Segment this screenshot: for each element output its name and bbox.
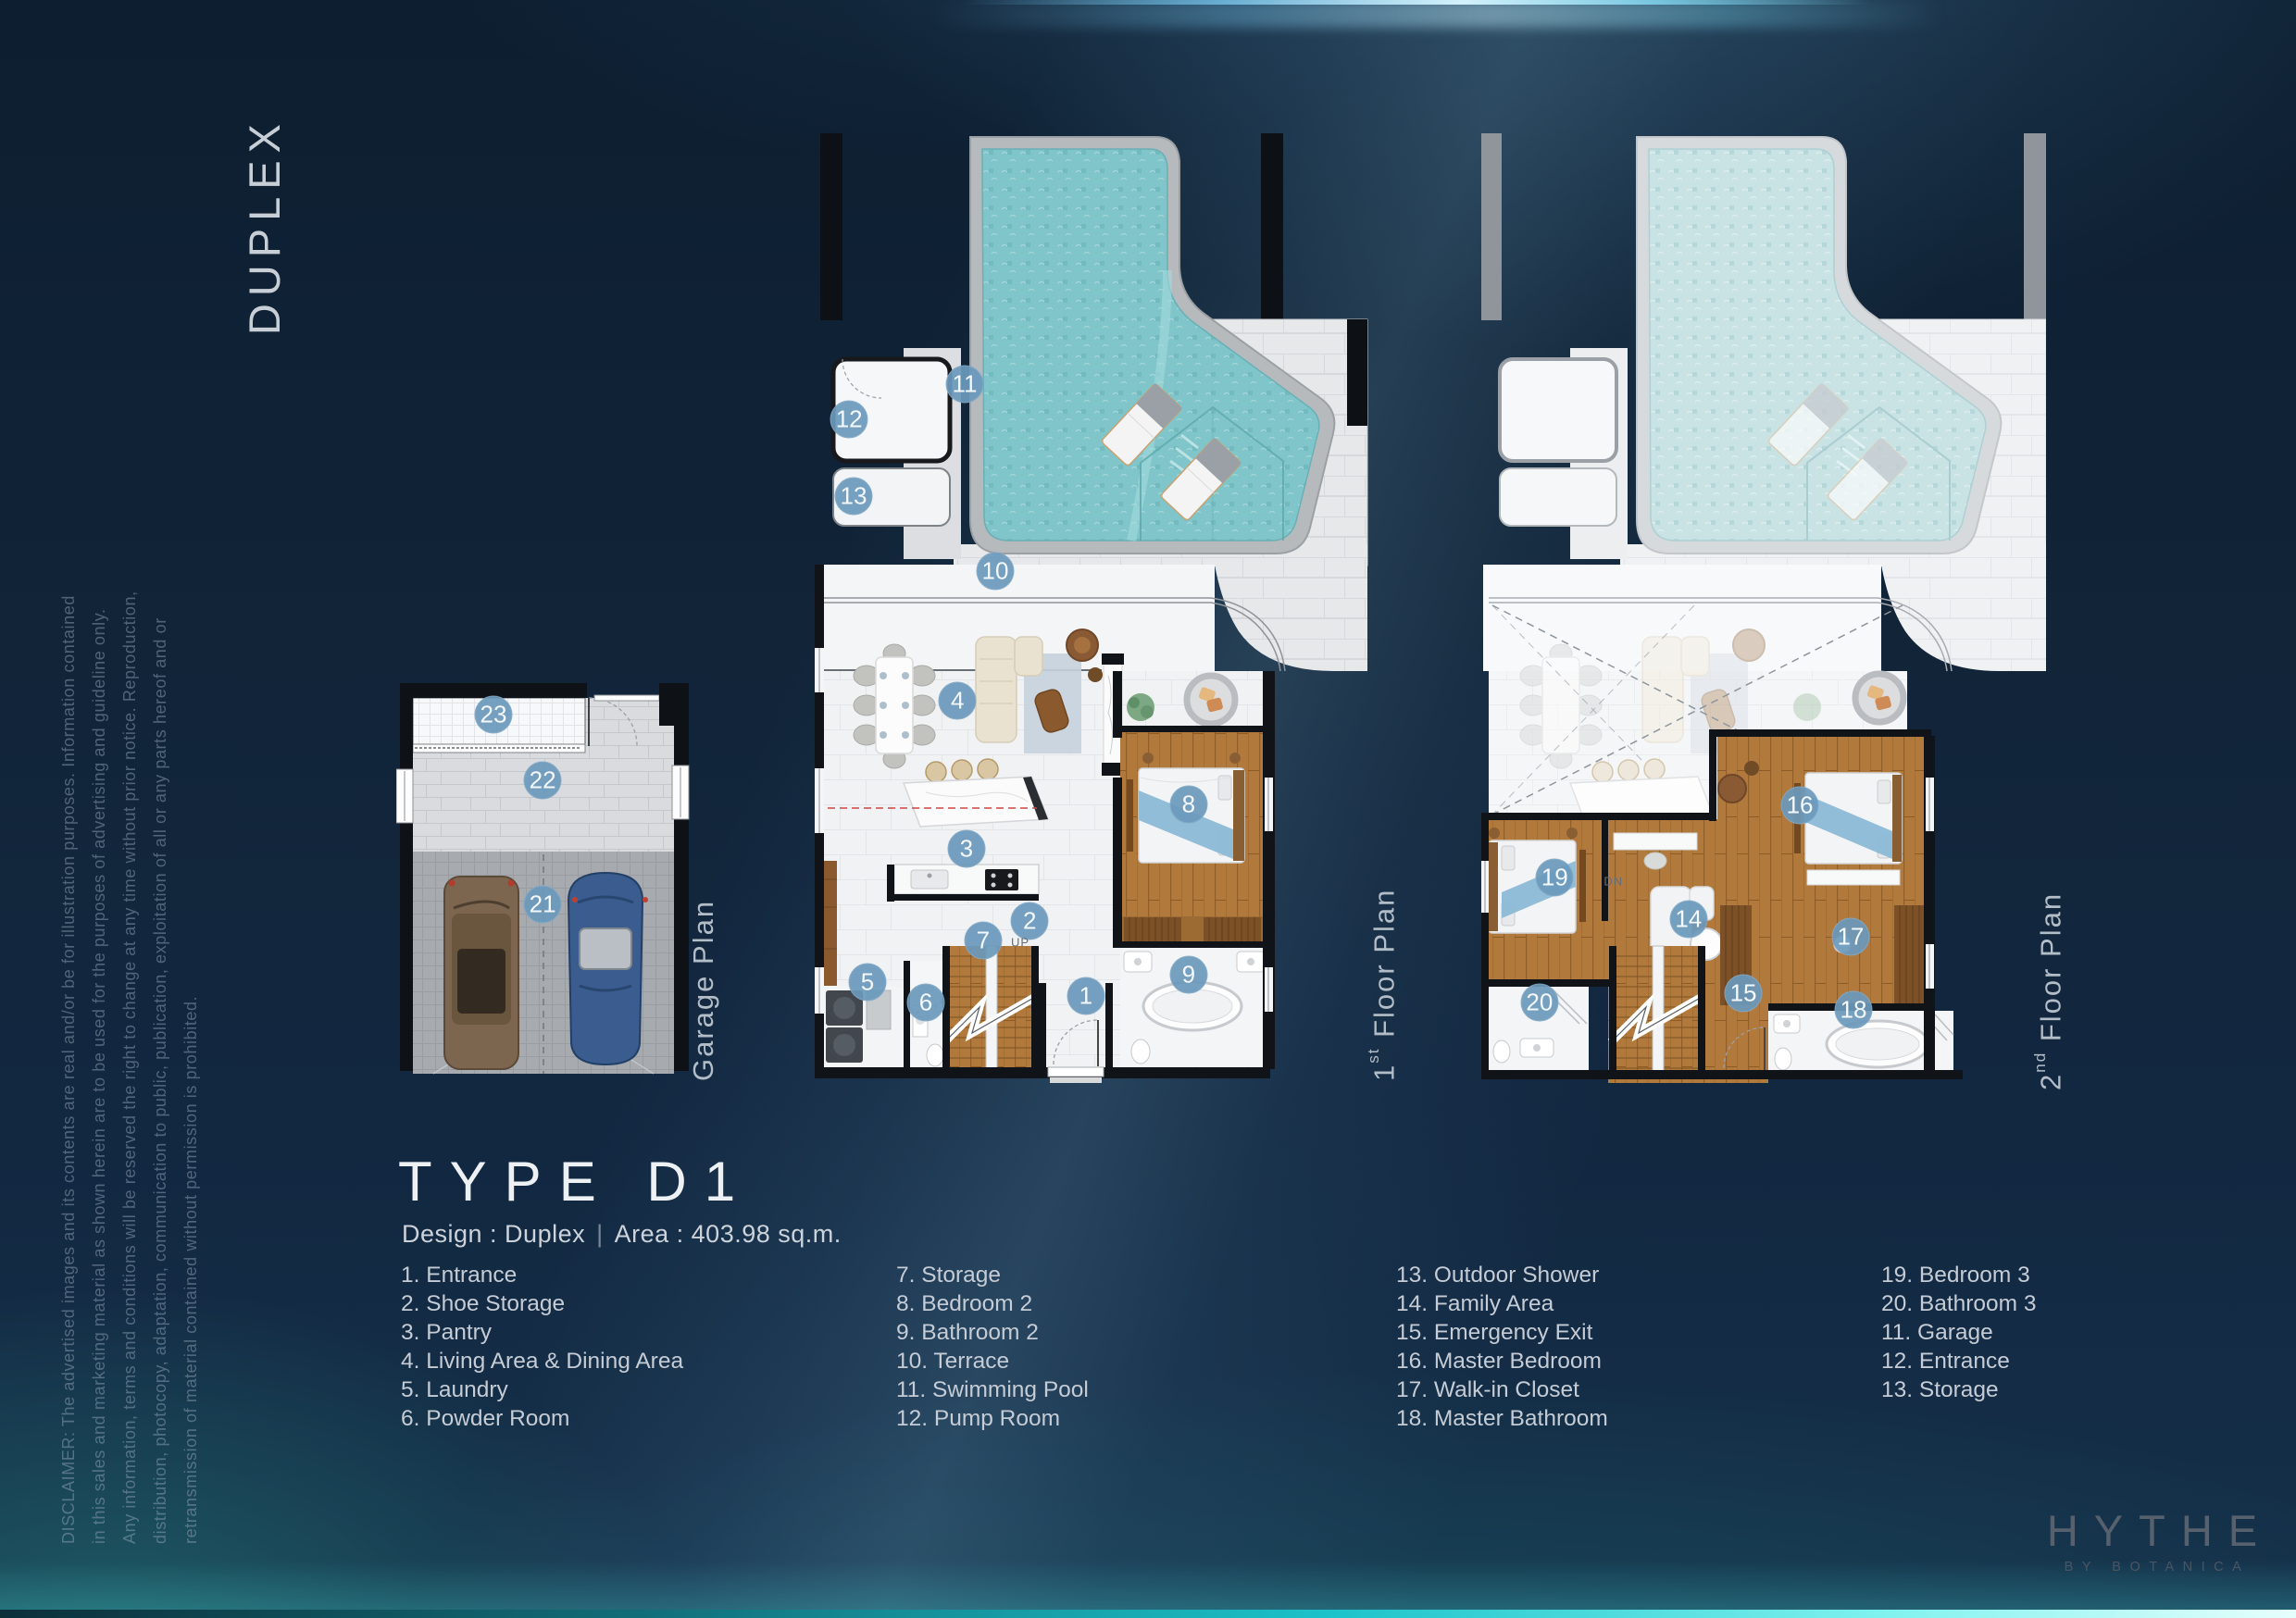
room-marker-18: 18	[1834, 990, 1872, 1028]
bottom-cyan-strip	[0, 1610, 2296, 1618]
legend-item: 7. Storage	[896, 1261, 1089, 1289]
room-marker-6: 6	[907, 984, 945, 1022]
legend-item: 17. Walk-in Closet	[1396, 1375, 1608, 1404]
legend-column-3: 13. Outdoor Shower14. Family Area15. Eme…	[1396, 1261, 1608, 1433]
legend-item: 11. Garage	[1881, 1318, 2037, 1347]
legend-item: 14. Family Area	[1396, 1289, 1608, 1318]
room-marker-8: 8	[1169, 786, 1207, 824]
room-marker-22: 22	[524, 761, 562, 799]
area-label: Area : 403.98 sq.m.	[615, 1220, 842, 1248]
legend-item: 10. Terrace	[896, 1347, 1089, 1375]
legend-item: 20. Bathroom 3	[1881, 1289, 2037, 1318]
legend-item: 8. Bedroom 2	[896, 1289, 1089, 1318]
legend-item: 5. Laundry	[401, 1375, 683, 1404]
disclaimer-line: DISCLAIMER: The advertised images and it…	[59, 24, 79, 1544]
design-label: Design : Duplex	[402, 1220, 585, 1248]
legend-column-1: 1. Entrance2. Shoe Storage3. Pantry4. Li…	[401, 1261, 683, 1433]
legend-item: 11. Swimming Pool	[896, 1375, 1089, 1404]
room-marker-15: 15	[1725, 975, 1763, 1013]
legend-item: 3. Pantry	[401, 1318, 683, 1347]
second-floor-markers: 16191417152018DN	[1481, 130, 2046, 1083]
legend-item: 13. Storage	[1881, 1375, 2037, 1404]
legend-item: 4. Living Area & Dining Area	[401, 1347, 683, 1375]
legend-item: 9. Bathroom 2	[896, 1318, 1089, 1347]
brochure-page: DISCLAIMER: The advertised images and it…	[0, 0, 2296, 1618]
room-marker-10: 10	[977, 552, 1015, 590]
room-marker-12: 12	[830, 401, 868, 439]
disclaimer-text: DISCLAIMER: The advertised images and it…	[59, 24, 201, 1544]
legend-column-2: 7. Storage8. Bedroom 29. Bathroom 210. T…	[896, 1261, 1089, 1433]
brand-name: HYTHE	[2033, 1505, 2274, 1556]
room-marker-1: 1	[1067, 977, 1104, 1015]
disclaimer-line: distribution, photocopy, adaptation, com…	[151, 24, 170, 1544]
legend-item: 15. Emergency Exit	[1396, 1318, 1608, 1347]
room-marker-5: 5	[849, 963, 887, 1001]
room-marker-20: 20	[1520, 984, 1558, 1022]
bottom-teal-glow	[0, 1561, 2296, 1612]
garage-plan-label-text: Garage Plan	[687, 900, 719, 1081]
first-floor-markers: 11121310483275619UP	[815, 130, 1370, 1083]
legend-column-4: 19. Bedroom 320. Bathroom 311. Garage12.…	[1881, 1261, 2037, 1404]
garage-markers: 232221	[396, 680, 693, 1078]
disclaimer-line: Any information, terms and conditions wi…	[120, 24, 140, 1544]
first-floor-label-rest: Floor Plan	[1367, 889, 1400, 1048]
second-floor-plan: 16191417152018DN	[1481, 130, 2046, 1083]
room-marker-19: 19	[1536, 858, 1574, 896]
room-marker-13: 13	[835, 477, 873, 515]
brand-subtitle: BY BOTANICA	[2033, 1560, 2274, 1574]
first-floor-plan-label: 1st Floor Plan	[1365, 827, 1401, 1081]
brand-logo: HYTHE BY BOTANICA	[2033, 1505, 2274, 1574]
first-floor-label-num: 1	[1367, 1064, 1400, 1081]
garage-plan: 232221	[396, 680, 693, 1078]
legend-item: 19. Bedroom 3	[1881, 1261, 2037, 1289]
room-marker-4: 4	[939, 681, 977, 719]
room-marker-14: 14	[1669, 900, 1707, 938]
legend-item: 2. Shoe Storage	[401, 1289, 683, 1318]
room-marker-3: 3	[947, 829, 985, 867]
second-floor-label-rest: Floor Plan	[2034, 892, 2066, 1052]
duplex-side-title: DUPLEX	[239, 117, 290, 335]
room-marker-17: 17	[1831, 918, 1869, 956]
room-marker-16: 16	[1781, 787, 1819, 825]
room-marker-9: 9	[1169, 955, 1207, 993]
legend-item: 16. Master Bedroom	[1396, 1347, 1608, 1375]
top-light-streak	[963, 0, 1870, 5]
second-floor-label-num: 2	[2034, 1073, 2066, 1090]
room-marker-23: 23	[474, 695, 512, 733]
first-floor-label-sup: st	[1365, 1048, 1382, 1064]
stair-direction-label: UP	[1011, 935, 1029, 949]
disclaimer-line: in this sales and marketing material as …	[90, 24, 109, 1544]
second-floor-label-sup: nd	[2031, 1052, 2049, 1073]
disclaimer-line: retransmission of material contained wit…	[181, 24, 201, 1544]
legend-item: 1. Entrance	[401, 1261, 683, 1289]
type-subtitle: Design : Duplex|Area : 403.98 sq.m.	[402, 1220, 842, 1249]
legend-item: 13. Outdoor Shower	[1396, 1261, 1608, 1289]
first-floor-plan: 11121310483275619UP	[815, 130, 1370, 1083]
legend-item: 18. Master Bathroom	[1396, 1404, 1608, 1433]
garage-plan-label: Garage Plan	[687, 859, 720, 1081]
room-marker-21: 21	[524, 886, 562, 924]
room-marker-11: 11	[946, 366, 984, 404]
subtitle-divider: |	[585, 1220, 615, 1248]
legend-item: 12. Entrance	[1881, 1347, 2037, 1375]
stair-direction-label: DN	[1603, 874, 1623, 888]
legend-item: 6. Powder Room	[401, 1404, 683, 1433]
type-title: TYPE D1	[398, 1150, 753, 1213]
room-marker-7: 7	[964, 921, 1002, 959]
legend-item: 12. Pump Room	[896, 1404, 1089, 1433]
second-floor-plan-label: 2nd Floor Plan	[2031, 813, 2067, 1090]
